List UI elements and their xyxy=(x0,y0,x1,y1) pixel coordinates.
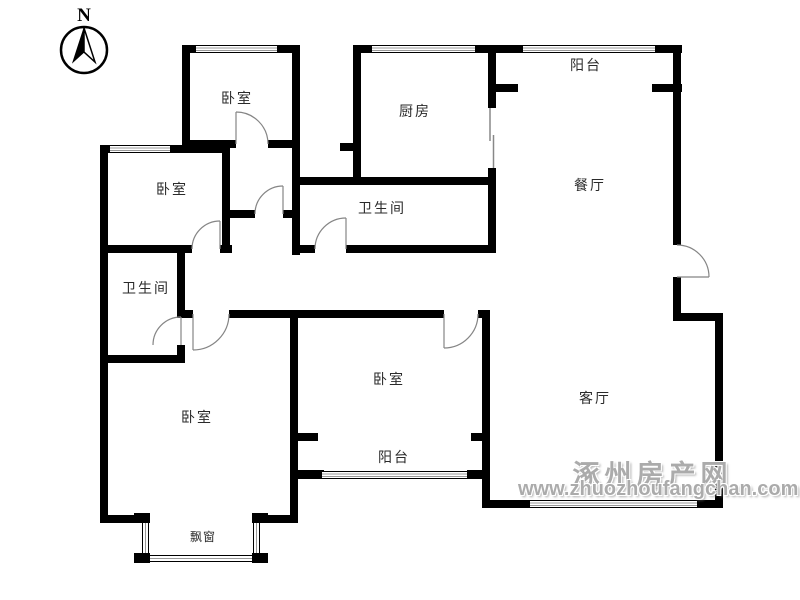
room-label-bathroom-top: 卫生间 xyxy=(358,200,406,216)
door-bedroom-bottom-left xyxy=(193,314,229,350)
room-label-bay-window: 飘窗 xyxy=(190,530,216,544)
floor-plan-page: 卧室 厨房 阳台 餐厅 卧室 卫生间 卫生间 卧室 卧室 阳台 客厅 飘窗 N … xyxy=(0,0,800,600)
door-bathroom-top xyxy=(315,218,346,249)
window-balcony-bottom xyxy=(322,471,467,479)
room-label-bedroom-bottom-mid: 卧室 xyxy=(373,371,405,387)
door-hall-passage xyxy=(255,186,283,214)
room-labels: 卧室 厨房 阳台 餐厅 卧室 卫生间 卫生间 卧室 卧室 阳台 客厅 飘窗 xyxy=(122,57,611,544)
floor-plan-canvas: 卧室 厨房 阳台 餐厅 卧室 卫生间 卫生间 卧室 卧室 阳台 客厅 飘窗 N xyxy=(0,0,800,600)
door-bedroom-top xyxy=(236,112,268,144)
compass-north-label: N xyxy=(77,5,91,26)
room-label-balcony-top: 阳台 xyxy=(570,57,602,73)
compass: N xyxy=(61,5,107,73)
room-label-dining-room: 餐厅 xyxy=(574,177,606,193)
door-bedroom-bottom-mid xyxy=(444,314,478,348)
room-label-living-room: 客厅 xyxy=(579,390,611,406)
window-kitchen xyxy=(372,45,475,53)
room-label-bedroom-bottom-left: 卧室 xyxy=(181,409,213,425)
room-label-balcony-bottom: 阳台 xyxy=(378,449,410,465)
door-bathroom-left xyxy=(153,317,181,345)
room-label-bathroom-left: 卫生间 xyxy=(122,280,170,296)
room-label-kitchen: 厨房 xyxy=(399,103,431,119)
room-label-bedroom-mid-left: 卧室 xyxy=(156,181,188,197)
window-bedroom-top xyxy=(196,45,277,53)
window-living-room xyxy=(530,500,697,508)
door-dining-living xyxy=(677,245,709,277)
watermark-site-url: www.zhuozhoufangchan.com xyxy=(518,478,790,501)
window-balcony-top xyxy=(523,45,655,53)
room-label-bedroom-top: 卧室 xyxy=(221,90,253,106)
window-bedroom-mid-left xyxy=(110,145,170,153)
door-bedroom-mid-left xyxy=(192,221,220,249)
sliding-door-kitchen xyxy=(490,108,494,168)
compass-needle-icon xyxy=(61,27,107,73)
